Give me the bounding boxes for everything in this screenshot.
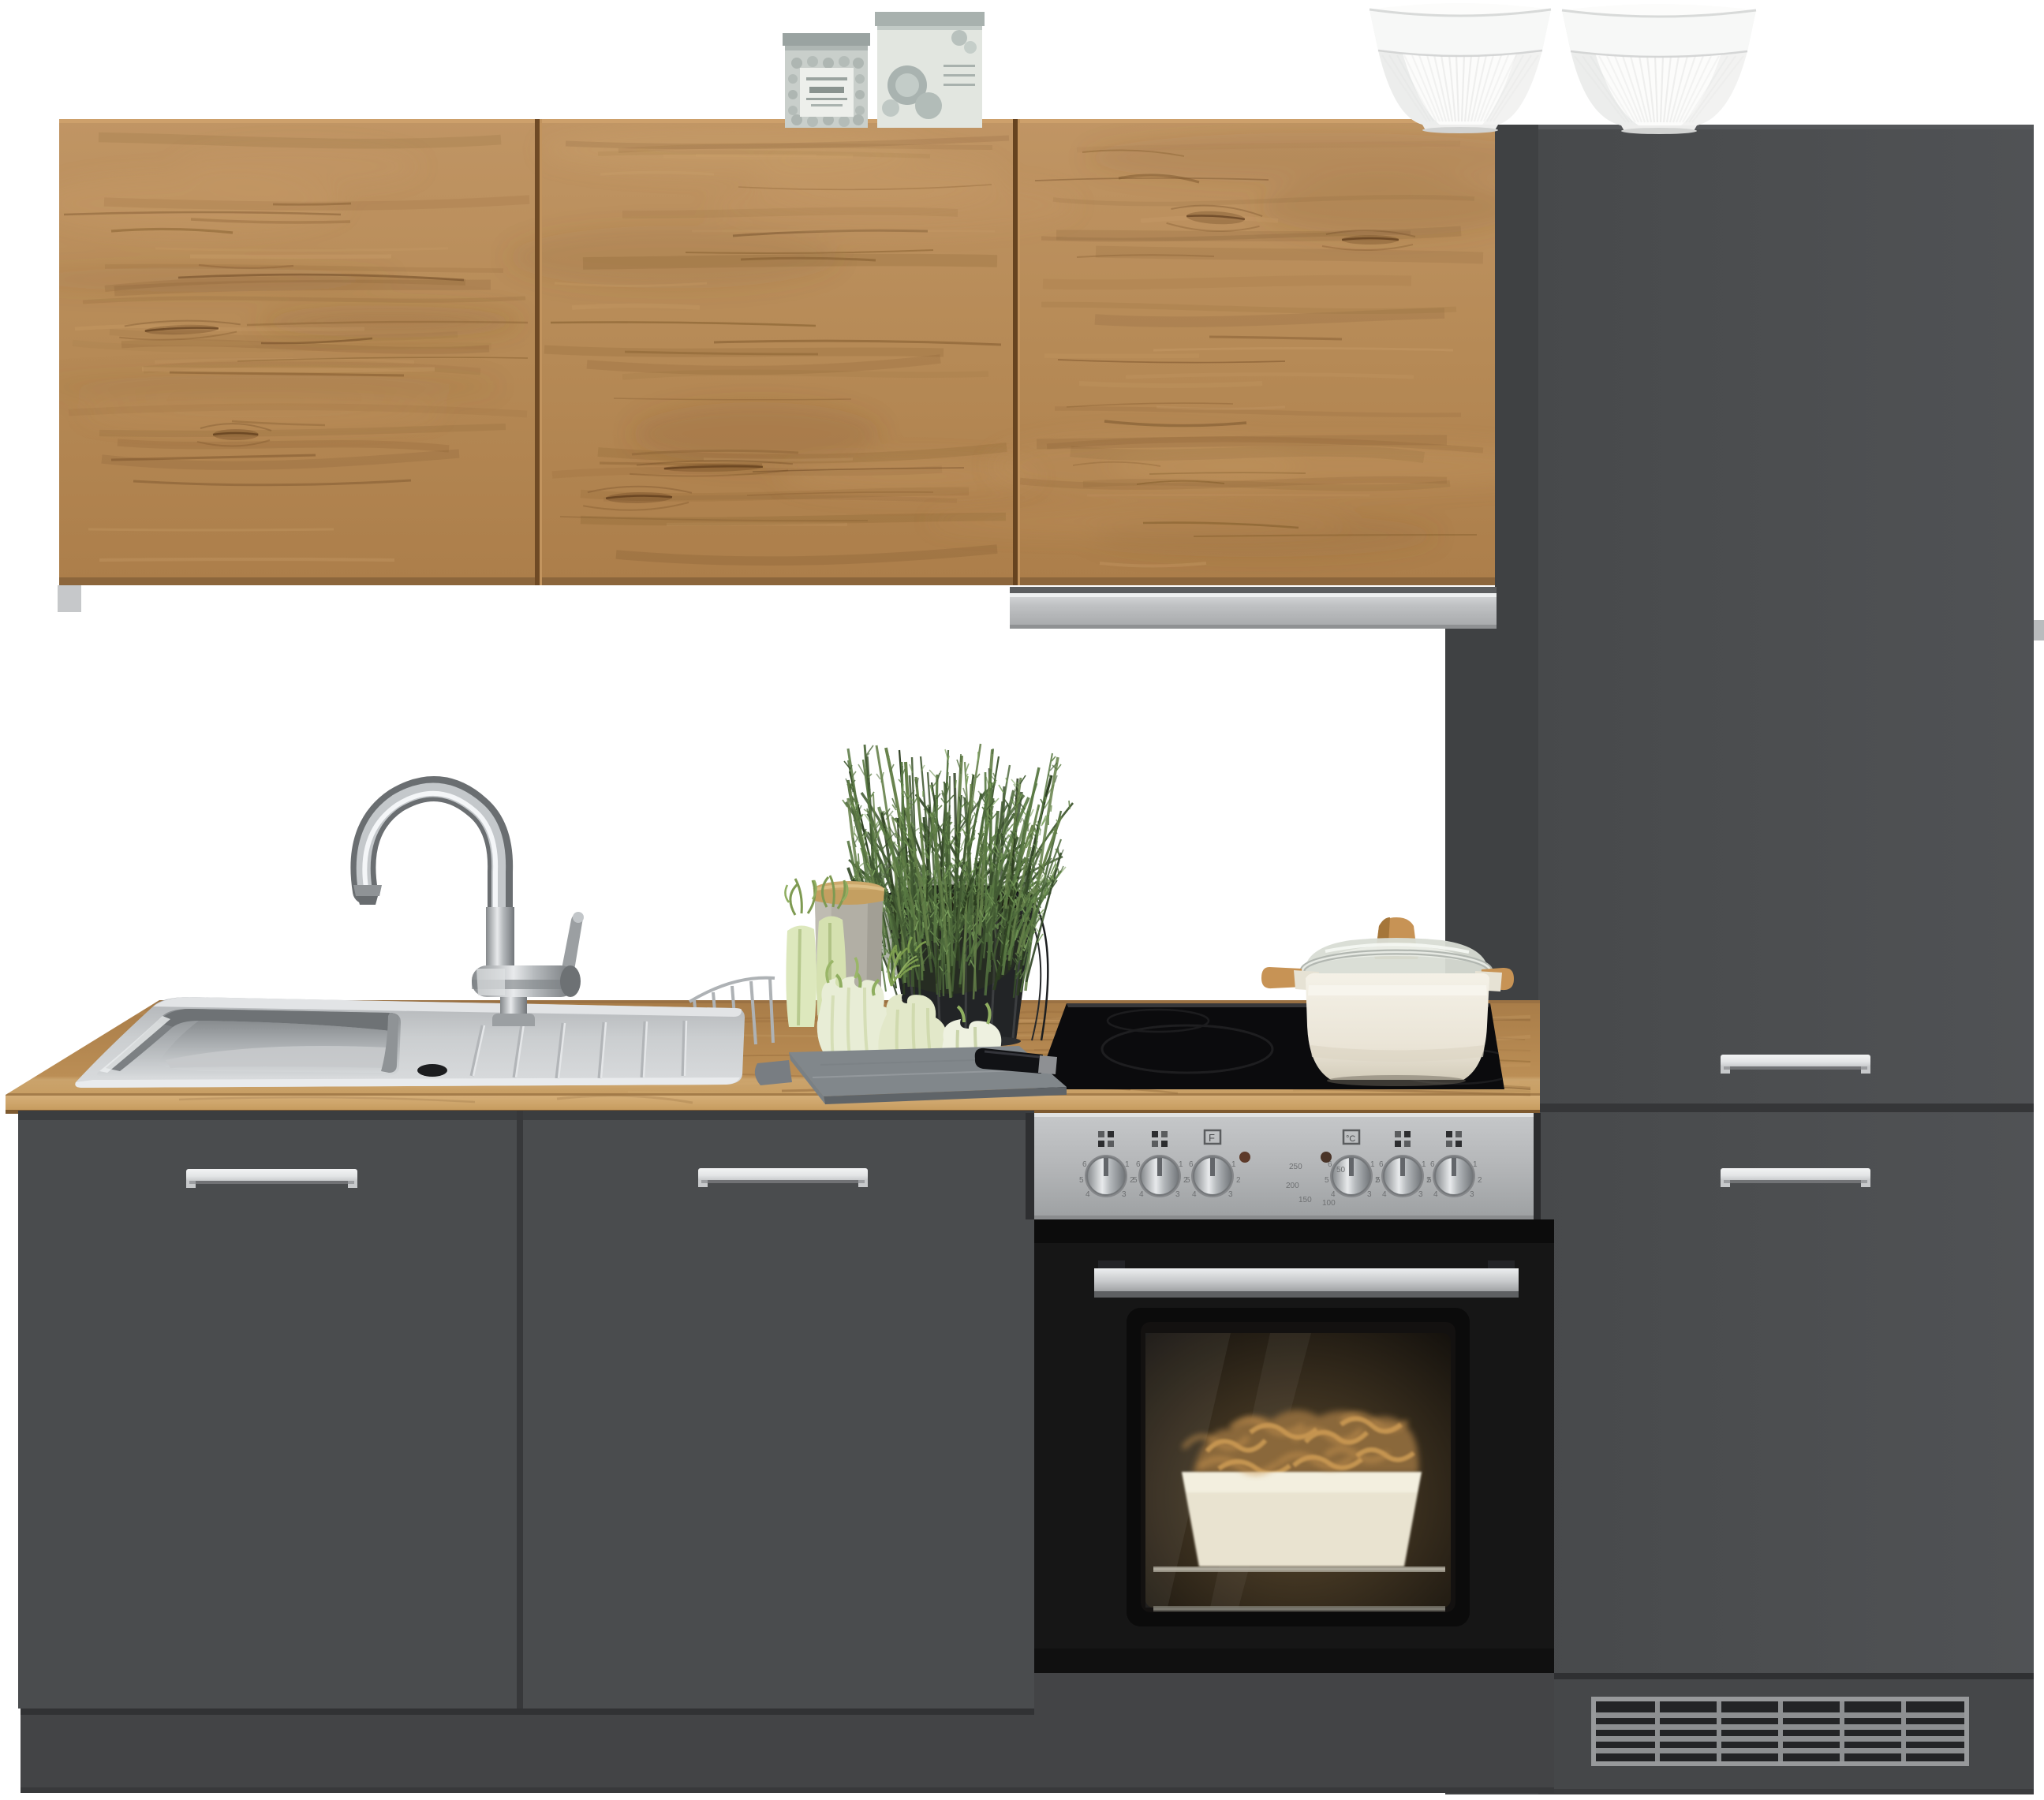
svg-text:6: 6	[1189, 1160, 1194, 1169]
svg-text:1: 1	[1370, 1160, 1375, 1169]
svg-text:1: 1	[1231, 1160, 1236, 1169]
svg-text:1: 1	[1125, 1160, 1130, 1169]
svg-text:2: 2	[1236, 1176, 1241, 1185]
svg-text:100: 100	[1322, 1199, 1336, 1208]
svg-text:4: 4	[1331, 1190, 1336, 1199]
svg-text:6: 6	[1136, 1160, 1141, 1169]
svg-text:3: 3	[1470, 1190, 1474, 1199]
svg-text:200: 200	[1286, 1182, 1299, 1190]
svg-text:°C: °C	[1346, 1134, 1355, 1144]
svg-text:5: 5	[1079, 1176, 1084, 1185]
svg-text:1: 1	[1422, 1160, 1426, 1169]
svg-text:4: 4	[1382, 1190, 1387, 1199]
svg-text:5: 5	[1325, 1176, 1329, 1185]
svg-text:2: 2	[1478, 1176, 1482, 1185]
svg-text:150: 150	[1299, 1196, 1312, 1204]
svg-text:50: 50	[1336, 1166, 1346, 1174]
svg-text:4: 4	[1433, 1190, 1438, 1199]
svg-text:5: 5	[1427, 1176, 1432, 1185]
svg-text:4: 4	[1192, 1190, 1197, 1199]
svg-text:4: 4	[1139, 1190, 1144, 1199]
svg-text:4: 4	[1086, 1190, 1090, 1199]
svg-text:250: 250	[1289, 1163, 1302, 1171]
svg-text:3: 3	[1418, 1190, 1423, 1199]
svg-text:3: 3	[1367, 1190, 1372, 1199]
svg-text:6: 6	[1082, 1160, 1087, 1169]
svg-text:3: 3	[1175, 1190, 1180, 1199]
svg-text:6: 6	[1379, 1160, 1384, 1169]
svg-text:3: 3	[1228, 1190, 1233, 1199]
svg-text:6: 6	[1430, 1160, 1435, 1169]
svg-text:1: 1	[1179, 1160, 1183, 1169]
svg-text:1: 1	[1473, 1160, 1478, 1169]
svg-text:5: 5	[1133, 1176, 1138, 1185]
svg-text:5: 5	[1186, 1176, 1190, 1185]
svg-text:5: 5	[1376, 1176, 1381, 1185]
svg-text:3: 3	[1122, 1190, 1127, 1199]
svg-text:F: F	[1209, 1132, 1215, 1144]
